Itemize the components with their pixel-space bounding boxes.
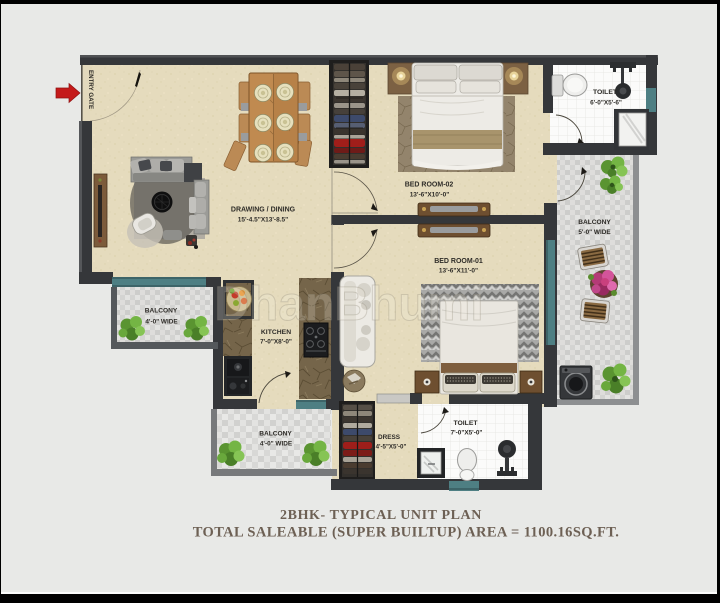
svg-text:5'-0" WIDE: 5'-0" WIDE bbox=[578, 229, 611, 236]
svg-text:7'-0"X8'-0": 7'-0"X8'-0" bbox=[260, 339, 292, 346]
svg-text:DRESS: DRESS bbox=[378, 434, 401, 441]
svg-text:13'-6"X11'-0": 13'-6"X11'-0" bbox=[439, 268, 478, 275]
svg-text:DhanBhumi: DhanBhumi bbox=[214, 278, 483, 331]
svg-text:TOTAL SALEABLE (SUPER BUILTUP): TOTAL SALEABLE (SUPER BUILTUP) AREA = 11… bbox=[193, 525, 620, 541]
svg-text:4'-0" WIDE: 4'-0" WIDE bbox=[145, 319, 178, 326]
svg-text:TOILET: TOILET bbox=[593, 89, 618, 96]
svg-text:ENTRY GATE: ENTRY GATE bbox=[87, 70, 94, 109]
svg-text:2BHK- TYPICAL UNIT PLAN: 2BHK- TYPICAL UNIT PLAN bbox=[280, 508, 482, 523]
svg-text:BED ROOM-02: BED ROOM-02 bbox=[405, 182, 454, 189]
svg-text:TOILET: TOILET bbox=[453, 420, 478, 427]
svg-text:BALCONY: BALCONY bbox=[578, 219, 611, 226]
svg-text:6'-0"X5'-6": 6'-0"X5'-6" bbox=[590, 100, 622, 107]
svg-text:7'-0"X5'-0": 7'-0"X5'-0" bbox=[451, 430, 483, 437]
svg-text:DRAWING / DINING: DRAWING / DINING bbox=[231, 207, 296, 214]
svg-text:BALCONY: BALCONY bbox=[259, 431, 292, 438]
svg-text:4'-5"X5'-0": 4'-5"X5'-0" bbox=[376, 444, 407, 451]
svg-text:13'-6"X10'-0": 13'-6"X10'-0" bbox=[410, 192, 450, 199]
svg-text:BALCONY: BALCONY bbox=[145, 308, 178, 315]
svg-text:4'-0" WIDE: 4'-0" WIDE bbox=[260, 441, 293, 448]
svg-text:KITCHEN: KITCHEN bbox=[261, 329, 291, 336]
svg-text:BED ROOM-01: BED ROOM-01 bbox=[434, 258, 483, 265]
svg-text:15'-4.5"X13'-8.5": 15'-4.5"X13'-8.5" bbox=[238, 217, 288, 224]
